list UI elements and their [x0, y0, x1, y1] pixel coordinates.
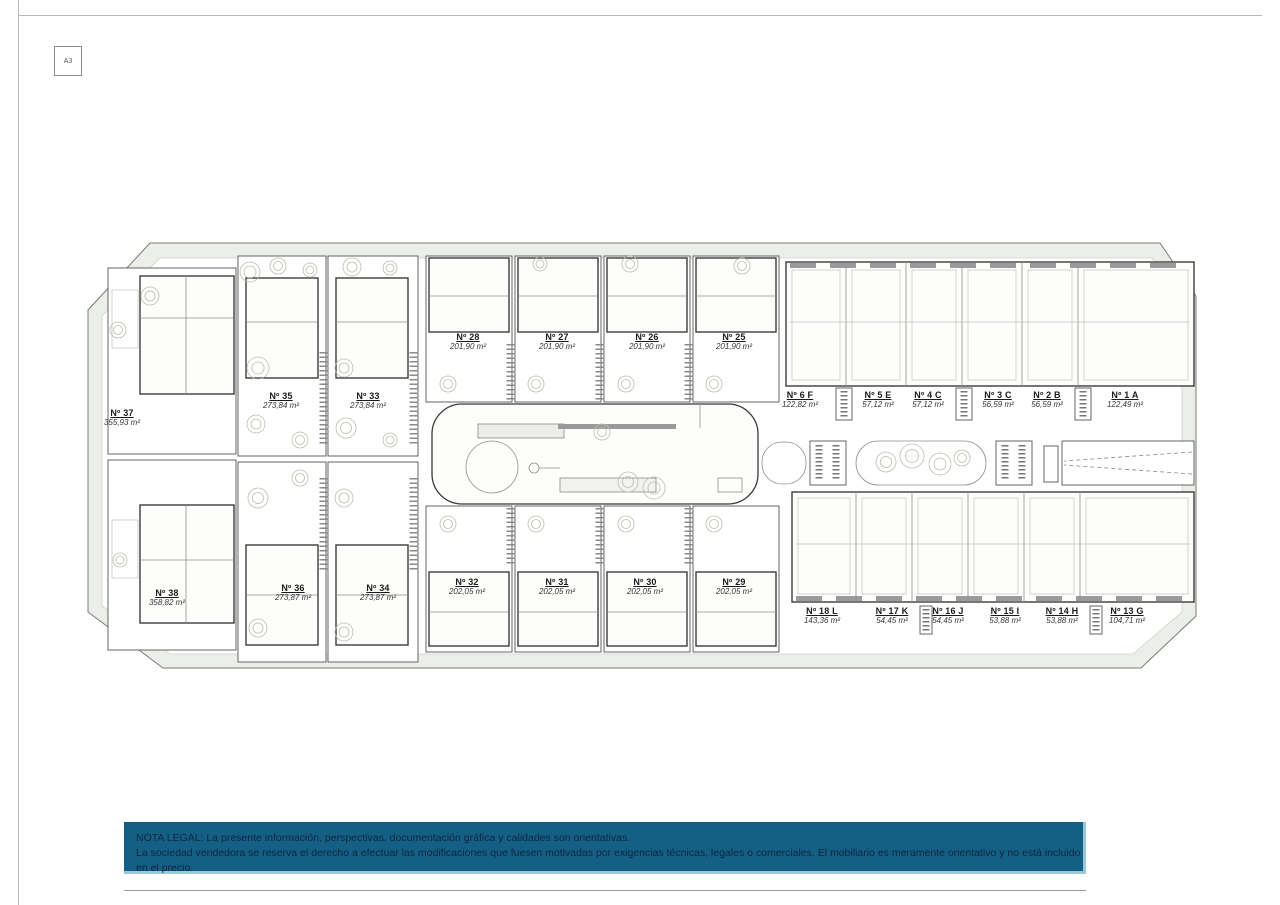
unit-number: Nº 5 E — [862, 390, 894, 400]
unit-area: 202,05 m² — [627, 587, 663, 597]
pool-common-area — [432, 404, 758, 504]
unit-number: Nº 38 — [149, 588, 185, 598]
unit-number: Nº 28 — [450, 332, 486, 342]
villa-38-block — [108, 460, 236, 650]
unit-label-no-35: Nº 35 273,84 m² — [263, 391, 299, 411]
unit-label-no-3c: Nº 3 C 56,59 m² — [982, 390, 1014, 410]
unit-label-no-30: Nº 30 202,05 m² — [627, 577, 663, 597]
unit-number: Nº 33 — [350, 391, 386, 401]
unit-number: Nº 31 — [539, 577, 575, 587]
unit-number: Nº 15 I — [989, 606, 1021, 616]
unit-label-no-25: Nº 25 201,90 m² — [716, 332, 752, 352]
legal-line-1: NOTA LEGAL: La presente información, per… — [136, 831, 1083, 846]
unit-label-no-36: Nº 36 273,87 m² — [275, 583, 311, 603]
unit-label-no-34: Nº 34 273,87 m² — [360, 583, 396, 603]
unit-label-no-2b: Nº 2 B 56,59 m² — [1031, 390, 1063, 410]
unit-number: Nº 34 — [360, 583, 396, 593]
unit-number: Nº 29 — [716, 577, 752, 587]
unit-number: Nº 4 C — [912, 390, 944, 400]
unit-label-no-13g: Nº 13 G 104,71 m² — [1109, 606, 1145, 626]
unit-area: 122,82 m² — [782, 400, 818, 410]
unit-label-no-32: Nº 32 202,05 m² — [449, 577, 485, 597]
unit-label-no-1a: Nº 1 A 122,49 m² — [1107, 390, 1143, 410]
unit-area: 273,87 m² — [360, 593, 396, 603]
legal-line-2: La sociedad vendedora se reserva el dere… — [136, 846, 1083, 876]
unit-area: 104,71 m² — [1109, 616, 1145, 626]
unit-label-no-5e: Nº 5 E 57,12 m² — [862, 390, 894, 410]
villa-36-block — [238, 462, 326, 662]
unit-area: 202,05 m² — [539, 587, 575, 597]
unit-label-no-27: Nº 27 201,90 m² — [539, 332, 575, 352]
unit-number: Nº 35 — [263, 391, 299, 401]
unit-area: 57,12 m² — [862, 400, 894, 410]
unit-area: 56,59 m² — [982, 400, 1014, 410]
unit-label-no-26: Nº 26 201,90 m² — [629, 332, 665, 352]
unit-area: 56,59 m² — [1031, 400, 1063, 410]
unit-label-no-4c: Nº 4 C 57,12 m² — [912, 390, 944, 410]
unit-area: 201,90 m² — [716, 342, 752, 352]
unit-number: Nº 27 — [539, 332, 575, 342]
unit-label-no-18l: Nº 18 L 143,36 m² — [804, 606, 840, 626]
legal-notice-bar: NOTA LEGAL: La presente información, per… — [124, 822, 1086, 874]
unit-area: 273,84 m² — [263, 401, 299, 411]
unit-number: Nº 2 B — [1031, 390, 1063, 400]
unit-number: Nº 14 H — [1046, 606, 1079, 616]
unit-area: 53,88 m² — [1046, 616, 1079, 626]
unit-label-no-17k: Nº 17 K 54,45 m² — [876, 606, 909, 626]
unit-area: 202,05 m² — [449, 587, 485, 597]
unit-number: Nº 30 — [627, 577, 663, 587]
unit-area: 53,88 m² — [989, 616, 1021, 626]
unit-number: Nº 3 C — [982, 390, 1014, 400]
unit-label-no-38: Nº 38 358,82 m² — [149, 588, 185, 608]
unit-area: 54,45 m² — [932, 616, 964, 626]
unit-area: 358,82 m² — [149, 598, 185, 608]
unit-area: 201,90 m² — [629, 342, 665, 352]
plan-sheet: A3 — [0, 0, 1280, 905]
unit-number: Nº 1 A — [1107, 390, 1143, 400]
site-plan-drawing — [0, 0, 1280, 905]
unit-area: 54,45 m² — [876, 616, 909, 626]
unit-area: 122,49 m² — [1107, 400, 1143, 410]
villa-34-block — [328, 462, 418, 662]
unit-area: 143,36 m² — [804, 616, 840, 626]
unit-number: Nº 16 J — [932, 606, 964, 616]
unit-number: Nº 25 — [716, 332, 752, 342]
unit-label-no-16j: Nº 16 J 54,45 m² — [932, 606, 964, 626]
unit-area: 202,05 m² — [716, 587, 752, 597]
unit-label-no-6f: Nº 6 F 122,82 m² — [782, 390, 818, 410]
unit-label-no-14h: Nº 14 H 53,88 m² — [1046, 606, 1079, 626]
unit-label-no-29: Nº 29 202,05 m² — [716, 577, 752, 597]
unit-number: Nº 17 K — [876, 606, 909, 616]
unit-number: Nº 32 — [449, 577, 485, 587]
unit-label-no-37: Nº 37 355,93 m² — [104, 408, 140, 428]
unit-label-no-28: Nº 28 201,90 m² — [450, 332, 486, 352]
unit-area: 273,87 m² — [275, 593, 311, 603]
unit-number: Nº 13 G — [1109, 606, 1145, 616]
unit-label-no-31: Nº 31 202,05 m² — [539, 577, 575, 597]
unit-area: 57,12 m² — [912, 400, 944, 410]
unit-number: Nº 18 L — [804, 606, 840, 616]
villa-33-block — [328, 256, 418, 456]
unit-area: 201,90 m² — [539, 342, 575, 352]
unit-label-no-33: Nº 33 273,84 m² — [350, 391, 386, 411]
unit-number: Nº 36 — [275, 583, 311, 593]
unit-area: 355,93 m² — [104, 418, 140, 428]
unit-number: Nº 26 — [629, 332, 665, 342]
unit-area: 273,84 m² — [350, 401, 386, 411]
unit-area: 201,90 m² — [450, 342, 486, 352]
sheet-frame-bottom — [124, 890, 1086, 891]
unit-number: Nº 6 F — [782, 390, 818, 400]
unit-number: Nº 37 — [104, 408, 140, 418]
unit-label-no-15i: Nº 15 I 53,88 m² — [989, 606, 1021, 626]
